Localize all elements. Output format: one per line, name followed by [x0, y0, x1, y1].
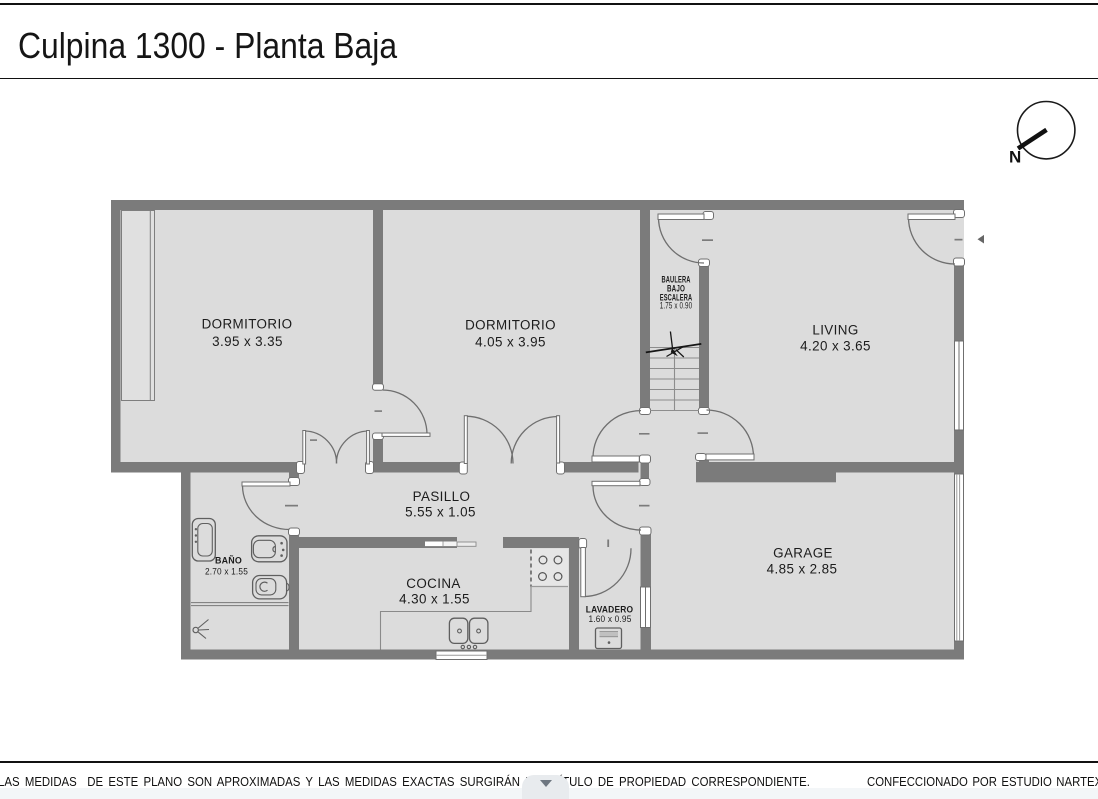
svg-text:4.20 x 3.65: 4.20 x 3.65 — [800, 339, 871, 354]
svg-text:BAÑO: BAÑO — [215, 556, 242, 566]
svg-text:3.95 x 3.35: 3.95 x 3.35 — [212, 334, 283, 349]
svg-text:4.30 x 1.55: 4.30 x 1.55 — [399, 592, 470, 607]
svg-text:4.05 x 3.95: 4.05 x 3.95 — [475, 335, 546, 350]
svg-text:2.70 x 1.55: 2.70 x 1.55 — [205, 567, 248, 577]
svg-text:GARAGE: GARAGE — [773, 546, 833, 561]
svg-text:COCINA: COCINA — [406, 576, 460, 591]
svg-text:5.55 x 1.05: 5.55 x 1.05 — [405, 505, 476, 520]
svg-text:LIVING: LIVING — [812, 323, 858, 338]
svg-text:N: N — [1009, 147, 1021, 166]
svg-text:DORMITORIO: DORMITORIO — [465, 318, 556, 333]
svg-text:1.60 x 0.95: 1.60 x 0.95 — [589, 614, 632, 624]
svg-text:4.85 x 2.85: 4.85 x 2.85 — [767, 562, 838, 577]
svg-text:DORMITORIO: DORMITORIO — [202, 317, 293, 332]
svg-text:1.75 x 0.90: 1.75 x 0.90 — [660, 301, 693, 311]
svg-text:LAVADERO: LAVADERO — [586, 605, 634, 615]
svg-text:PASILLO: PASILLO — [413, 489, 471, 504]
